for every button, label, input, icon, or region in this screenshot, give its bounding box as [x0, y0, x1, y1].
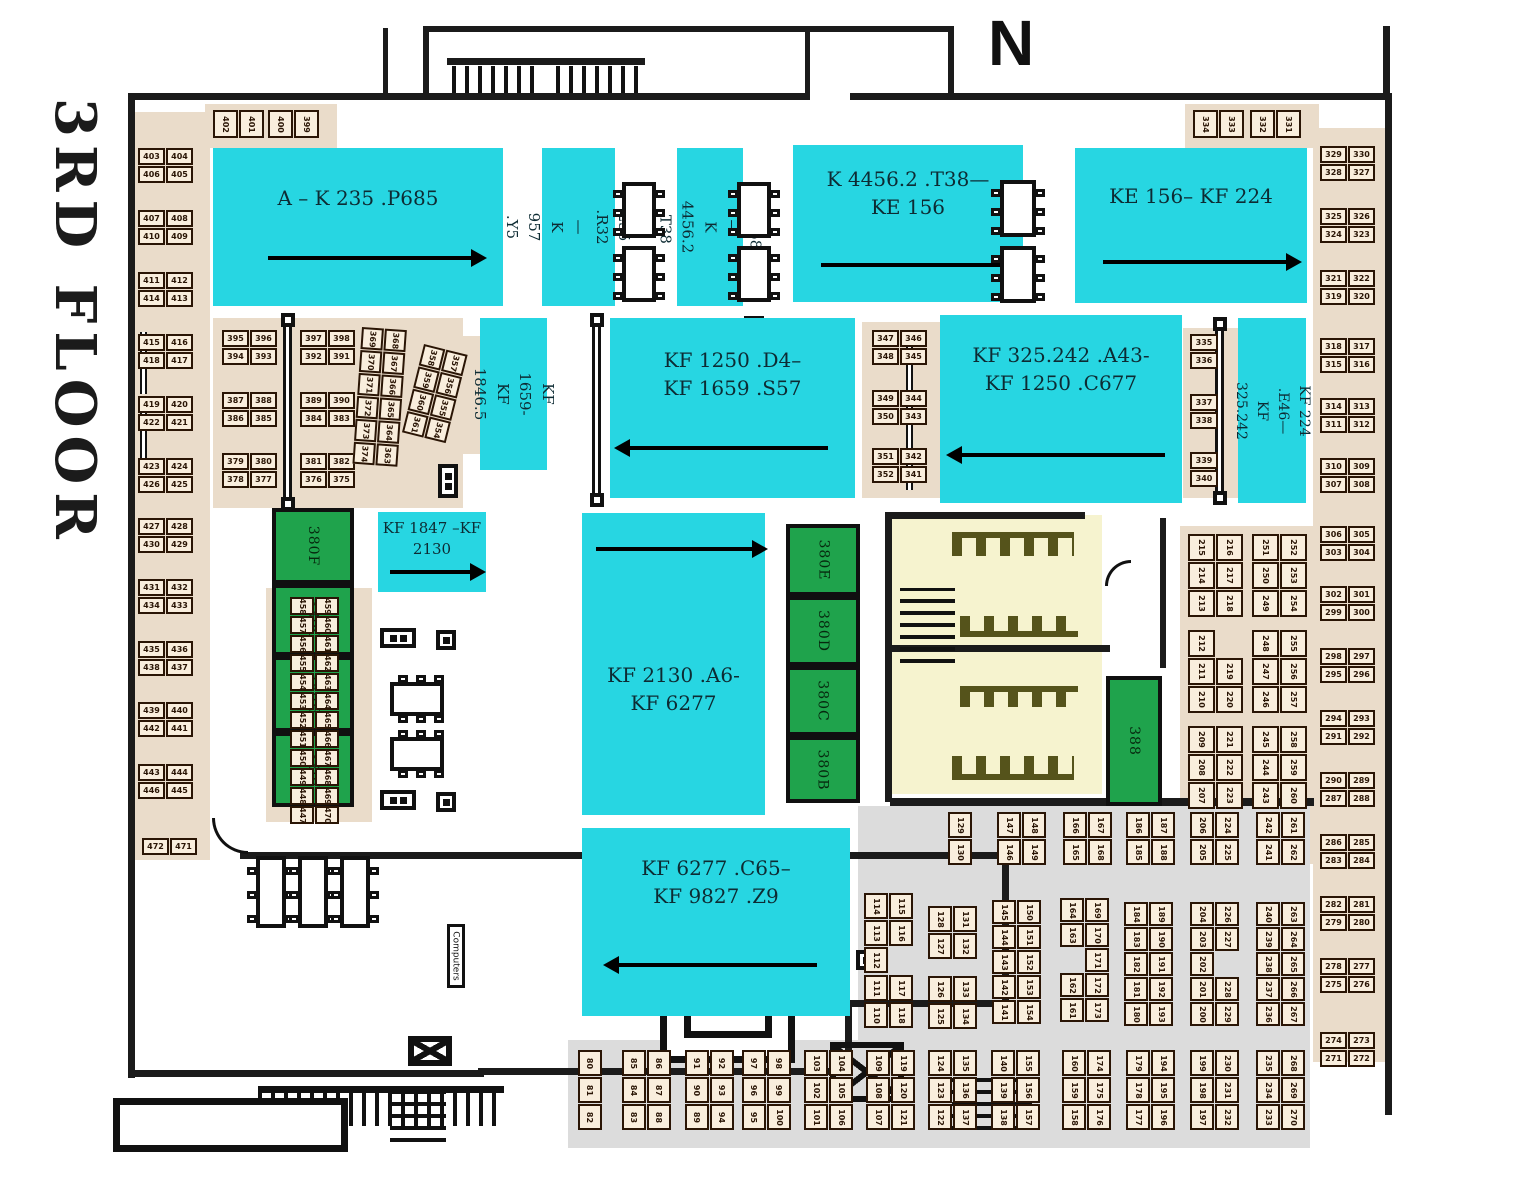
desk-cluster: 314313311312 — [1320, 398, 1375, 434]
desk-number: 93 — [717, 1084, 726, 1095]
desk-number: 206 — [1197, 817, 1206, 834]
desk-cluster: 369368370367371366372365373364374363 — [352, 327, 407, 468]
desk-372: 372 — [356, 396, 379, 419]
desk-455: 455 — [290, 654, 314, 672]
desk-106: 106 — [829, 1104, 853, 1130]
shelving-direction-arrow — [960, 453, 1165, 457]
desk-275: 275 — [1320, 976, 1347, 993]
desk-454: 454 — [290, 673, 314, 691]
desk-number: 351 — [877, 452, 894, 461]
desk-422: 422 — [138, 414, 165, 431]
shelving-direction-arrow — [268, 256, 473, 260]
chair — [613, 292, 623, 300]
desk-385: 385 — [250, 410, 277, 427]
wall-segment — [447, 58, 645, 65]
desk-row: 144151 — [992, 925, 1041, 949]
desk-number: 315 — [1325, 360, 1342, 369]
desk-number: 318 — [1325, 342, 1342, 351]
desk-223: 223 — [1216, 782, 1243, 809]
desk-170: 170 — [1085, 923, 1109, 947]
desk-151: 151 — [1017, 925, 1041, 949]
desk-cluster: 472471 — [142, 838, 197, 856]
desk-89: 89 — [685, 1104, 709, 1130]
desk-number: 148 — [1029, 817, 1038, 834]
desk-row: 340 — [1190, 470, 1218, 487]
desk-number: 203 — [1197, 931, 1206, 948]
stairs — [556, 66, 638, 93]
desk-row: 211219 — [1188, 658, 1243, 685]
desk-248: 248 — [1252, 630, 1279, 657]
desk-number: 446 — [143, 786, 160, 795]
desk-number: 168 — [1095, 844, 1104, 861]
desk-row: 248255 — [1252, 630, 1307, 657]
desk-number: 182 — [1131, 956, 1140, 973]
desk-row: 139156 — [991, 1077, 1040, 1103]
desk-168: 168 — [1088, 839, 1112, 865]
desk-cluster: 206224205225 — [1190, 812, 1239, 866]
desk-445: 445 — [166, 782, 193, 799]
desk-306: 306 — [1320, 526, 1347, 543]
desk-number: 309 — [1353, 462, 1370, 471]
desk-327: 327 — [1348, 164, 1375, 181]
desk-row: 299300 — [1320, 604, 1375, 621]
desk-number: 187 — [1158, 817, 1167, 834]
stack-zone-k958-k4456: K 958— K 4456.2 .T38 — [677, 148, 743, 306]
desk-number: 349 — [877, 394, 894, 403]
desk-83: 83 — [622, 1104, 646, 1130]
desk-row: 213218 — [1188, 590, 1243, 617]
desk-cluster: 407408410409 — [138, 210, 193, 246]
desk-280: 280 — [1348, 914, 1375, 931]
desk-328: 328 — [1320, 164, 1347, 181]
desk-308: 308 — [1348, 476, 1375, 493]
desk-number: 89 — [692, 1111, 701, 1122]
desk-cluster: 160174159175158176 — [1062, 1050, 1111, 1131]
desk-273: 273 — [1348, 1032, 1375, 1049]
desk-381: 381 — [300, 453, 327, 470]
desk-number: 107 — [873, 1109, 882, 1126]
floor-title: 3RD FLOOR — [42, 98, 108, 547]
desk-384: 384 — [300, 410, 327, 427]
desk-row: 384383 — [300, 410, 355, 427]
desk-row: 177196 — [1126, 1104, 1175, 1130]
desk-230: 230 — [1215, 1050, 1239, 1076]
desk-row: 457460 — [290, 616, 339, 634]
desk-number: 139 — [998, 1082, 1007, 1099]
shelving-direction-arrow — [596, 547, 754, 551]
desk-cluster: 351342352341 — [872, 448, 927, 484]
desk-row: 251252 — [1252, 534, 1307, 561]
desk-row: 295296 — [1320, 666, 1375, 683]
desk-148: 148 — [1022, 812, 1046, 838]
desk-number: 296 — [1353, 670, 1370, 679]
desk-number: 328 — [1325, 168, 1342, 177]
desk-row: 183190 — [1124, 927, 1173, 951]
desk-row: 336 — [1190, 352, 1218, 369]
desk-cluster: 337338 — [1190, 394, 1218, 430]
shelving-direction-arrow — [821, 263, 1021, 267]
desk-number: 453 — [297, 693, 306, 710]
desk-number: 190 — [1156, 931, 1165, 948]
desk-401: 401 — [239, 110, 264, 138]
desk-366: 366 — [380, 374, 403, 397]
desk-number: 265 — [1288, 956, 1297, 973]
desk-number: 205 — [1197, 844, 1206, 861]
stack-zone-label: KF 1250 .D4– KF 1659 .S57 — [610, 346, 855, 402]
chair — [728, 254, 738, 262]
desk-217: 217 — [1216, 562, 1243, 589]
desk-465: 465 — [315, 711, 339, 729]
desk-number: 289 — [1353, 776, 1370, 785]
desk-number: 227 — [1222, 931, 1231, 948]
desk-389: 389 — [300, 392, 327, 409]
desk-270: 270 — [1281, 1104, 1305, 1130]
desk-number: 445 — [171, 786, 188, 795]
desk-row: 302301 — [1320, 586, 1375, 603]
desk-299: 299 — [1320, 604, 1347, 621]
desk-388: 388 — [250, 392, 277, 409]
desk-number: 128 — [935, 911, 944, 928]
desk-number: 209 — [1197, 731, 1206, 748]
desk-number: 222 — [1225, 759, 1234, 776]
desk-125: 125 — [928, 1003, 952, 1029]
desk-464: 464 — [315, 692, 339, 710]
desk-298: 298 — [1320, 648, 1347, 665]
desk-number: 313 — [1353, 402, 1370, 411]
desk-146: 146 — [997, 839, 1021, 865]
desk-211: 211 — [1188, 658, 1215, 685]
desk-row: 236267 — [1256, 1002, 1305, 1026]
desk-232: 232 — [1215, 1104, 1239, 1130]
desk-row: 171 — [1060, 948, 1109, 972]
desk-253: 253 — [1280, 562, 1307, 589]
chair — [991, 189, 1001, 197]
desk-cluster: 318317315316 — [1320, 338, 1375, 374]
desk-number: 468 — [322, 769, 331, 786]
desk-271: 271 — [1320, 1050, 1347, 1067]
desk-241: 241 — [1256, 839, 1280, 865]
desk-cluster: 349344350343 — [872, 390, 927, 426]
desk-number: 184 — [1131, 906, 1140, 923]
desk-row: 453464 — [290, 692, 339, 710]
desk-number: 406 — [143, 170, 160, 179]
desk-number: 427 — [143, 522, 160, 531]
desk-91: 91 — [685, 1050, 709, 1076]
desk-number: 176 — [1094, 1109, 1103, 1126]
desk-row: 205225 — [1190, 839, 1239, 865]
desk-row: 381382 — [300, 453, 355, 470]
desk-147: 147 — [997, 812, 1021, 838]
desk-number: 204 — [1197, 906, 1206, 923]
desk-187: 187 — [1151, 812, 1175, 838]
desk-number: 217 — [1225, 567, 1234, 584]
desk-276: 276 — [1348, 976, 1375, 993]
desk-154: 154 — [1017, 1000, 1041, 1024]
desk-number: 358 — [426, 348, 439, 366]
desk-number: 211 — [1197, 663, 1206, 680]
desk-number: 269 — [1288, 1082, 1297, 1099]
desk-200: 200 — [1190, 1002, 1214, 1026]
desk-363: 363 — [375, 443, 398, 466]
desk-number: 250 — [1261, 567, 1270, 584]
desk-cluster: 423424426425 — [138, 458, 193, 494]
desk-199: 199 — [1190, 1050, 1214, 1076]
desk-number: 282 — [1325, 900, 1342, 909]
desk-318: 318 — [1320, 338, 1347, 355]
desk-number: 322 — [1353, 274, 1370, 283]
chair — [398, 715, 408, 723]
desk-number: 249 — [1261, 595, 1270, 612]
desk-number: 140 — [998, 1055, 1007, 1072]
desk-number: 114 — [871, 898, 880, 915]
desk-number: 138 — [998, 1109, 1007, 1126]
desk-cluster: 919290938994 — [685, 1050, 734, 1131]
desk-233: 233 — [1256, 1104, 1280, 1130]
desk-row: 287288 — [1320, 790, 1375, 807]
desk-row: 389390 — [300, 392, 355, 409]
desk-number: 399 — [302, 116, 311, 133]
desk-164: 164 — [1060, 898, 1084, 922]
desk-408: 408 — [166, 210, 193, 227]
desk-number: 133 — [960, 981, 969, 998]
desk-number: 186 — [1133, 817, 1142, 834]
desk-row: 392391 — [300, 348, 355, 365]
desk-433: 433 — [166, 597, 193, 614]
desk-number: 432 — [171, 583, 188, 592]
desk-number: 288 — [1353, 794, 1370, 803]
desk-number: 246 — [1261, 691, 1270, 708]
desk-414: 414 — [138, 290, 165, 307]
desk-number: 388 — [255, 396, 272, 405]
desk-number: 179 — [1133, 1055, 1142, 1072]
desk-number: 464 — [322, 693, 331, 710]
desk-number: 384 — [305, 414, 322, 423]
desk-row: 186187 — [1126, 812, 1175, 838]
desk-row: 371366 — [357, 373, 403, 398]
desk-281: 281 — [1348, 896, 1375, 913]
desk-number: 261 — [1288, 817, 1297, 834]
desk-194: 194 — [1151, 1050, 1175, 1076]
desk-number: 268 — [1288, 1055, 1297, 1072]
chair — [1035, 274, 1045, 282]
desk-137: 137 — [953, 1104, 977, 1130]
desk-row: 8994 — [685, 1104, 734, 1130]
desk-152: 152 — [1017, 950, 1041, 974]
desk-247: 247 — [1252, 658, 1279, 685]
desk-329: 329 — [1320, 146, 1347, 163]
desk-189: 189 — [1149, 902, 1173, 926]
desk-row: 9093 — [685, 1077, 734, 1103]
desk-cluster: 179194178195177196 — [1126, 1050, 1175, 1131]
desk-204: 204 — [1190, 902, 1214, 926]
desk-139: 139 — [991, 1077, 1015, 1103]
desk-row: 204226 — [1190, 902, 1239, 926]
group-table — [298, 856, 328, 928]
desk-number: 257 — [1289, 691, 1298, 708]
desk-row: 329330 — [1320, 146, 1375, 163]
desk-number: 283 — [1325, 856, 1342, 865]
desk-row: 450467 — [290, 749, 339, 767]
desk-215: 215 — [1188, 534, 1215, 561]
desk-number: 210 — [1197, 691, 1206, 708]
desk-row: 200229 — [1190, 1002, 1239, 1026]
desk-179: 179 — [1126, 1050, 1150, 1076]
group-table — [1000, 180, 1036, 237]
desk-81: 81 — [578, 1077, 602, 1103]
desk-number: 297 — [1353, 652, 1370, 661]
chair — [369, 867, 379, 875]
desk-number: 299 — [1325, 608, 1342, 617]
chair — [434, 715, 444, 723]
desk-row: 306305 — [1320, 526, 1375, 543]
chair — [331, 915, 341, 923]
desk-number: 208 — [1197, 759, 1206, 776]
desk-row: 110118 — [864, 1002, 913, 1028]
desk-423: 423 — [138, 458, 165, 475]
desk-number: 467 — [322, 750, 331, 767]
desk-row: 311312 — [1320, 416, 1375, 433]
desk-row: 238265 — [1256, 952, 1305, 976]
shelf-unit — [438, 464, 458, 498]
desk-number: 101 — [811, 1109, 820, 1126]
desk-221: 221 — [1216, 726, 1243, 753]
desk-number: 253 — [1289, 567, 1298, 584]
desk-number: 301 — [1353, 590, 1370, 599]
desk-row: 275276 — [1320, 976, 1375, 993]
desk-437: 437 — [166, 659, 193, 676]
desk-175: 175 — [1087, 1077, 1111, 1103]
chair — [331, 891, 341, 899]
desk-cluster: 400399 — [268, 110, 319, 139]
chair — [655, 190, 665, 198]
desk-330: 330 — [1348, 146, 1375, 163]
desk-number: 306 — [1325, 530, 1342, 539]
desk-197: 197 — [1190, 1104, 1214, 1130]
desk-222: 222 — [1216, 754, 1243, 781]
wall-segment — [128, 1070, 484, 1077]
desk-number: 166 — [1070, 817, 1079, 834]
desk-cluster: 808182 — [578, 1050, 602, 1131]
desk-195: 195 — [1151, 1077, 1175, 1103]
desk-row: 319320 — [1320, 288, 1375, 305]
desk-cluster: 242261241262 — [1256, 812, 1305, 866]
chair — [655, 228, 665, 236]
chair — [728, 190, 738, 198]
desk-number: 195 — [1158, 1082, 1167, 1099]
desk-row: 201228 — [1190, 977, 1239, 1001]
desk-284: 284 — [1348, 852, 1375, 869]
desk-352: 352 — [872, 466, 899, 483]
desk-185: 185 — [1126, 839, 1150, 865]
desk-number: 149 — [1029, 844, 1038, 861]
desk-row: 179194 — [1126, 1050, 1175, 1076]
desk-cluster: 204226203227202201228200229 — [1190, 902, 1239, 1027]
desk-row: 240263 — [1256, 902, 1305, 926]
desk-301: 301 — [1348, 586, 1375, 603]
desk-number: 448 — [297, 788, 306, 805]
desk-cluster: 245258244259243260 — [1252, 726, 1307, 810]
desk-number: 375 — [333, 475, 350, 484]
desk-row: 147148 — [997, 812, 1046, 838]
desk-row: 443444 — [138, 764, 193, 781]
desk-number: 239 — [1263, 931, 1272, 948]
desk-number: 119 — [898, 1055, 907, 1072]
desk-number: 247 — [1261, 663, 1270, 680]
desk-row: 80 — [578, 1050, 602, 1076]
wall-segment — [885, 512, 892, 802]
desk-number: 173 — [1092, 1002, 1101, 1019]
desk-number: 460 — [322, 617, 331, 634]
desk-130: 130 — [948, 839, 972, 865]
desk-row: 338 — [1190, 412, 1218, 429]
desk-number: 415 — [143, 338, 160, 347]
desk-cluster: 419420422421 — [138, 396, 193, 432]
desk-row: 202 — [1190, 952, 1239, 976]
desk-row: 455462 — [290, 654, 339, 672]
desk-number: 298 — [1325, 652, 1342, 661]
desk-row: 244259 — [1252, 754, 1307, 781]
desk-number: 105 — [836, 1082, 845, 1099]
desk-237: 237 — [1256, 977, 1280, 1001]
desk-row: 239264 — [1256, 927, 1305, 951]
bookshelf — [592, 322, 601, 498]
stack-zone-kf325-kf1250: KF 325.242 .A43- KF 1250 .C677 — [940, 315, 1182, 503]
desk-number: 106 — [836, 1109, 845, 1126]
desk-124: 124 — [928, 1050, 952, 1076]
desk-cluster: 402401 — [213, 110, 264, 139]
desk-260: 260 — [1280, 782, 1307, 809]
chair — [655, 209, 665, 217]
desk-number: 291 — [1325, 732, 1342, 741]
chair — [613, 190, 623, 198]
desk-226: 226 — [1215, 902, 1239, 926]
desk-number: 360 — [414, 393, 427, 411]
desk-number: 116 — [896, 925, 905, 942]
desk-row: 339 — [1190, 452, 1218, 469]
desk-311: 311 — [1320, 416, 1347, 433]
desk-cluster: 4584594574604564614554624544634534644524… — [290, 597, 339, 825]
chair — [247, 915, 257, 923]
desk-number: 120 — [898, 1082, 907, 1099]
desk-number: 178 — [1133, 1082, 1142, 1099]
desk-number: 95 — [749, 1111, 758, 1122]
desk-224: 224 — [1215, 812, 1239, 838]
desk-number: 264 — [1288, 931, 1297, 948]
stack-zone-label: KF 2130 .A6- KF 6277 — [582, 661, 765, 717]
desk-315: 315 — [1320, 356, 1347, 373]
desk-404: 404 — [166, 148, 193, 165]
desk-368: 368 — [383, 329, 406, 352]
desk-number: 333 — [1227, 116, 1236, 133]
desk-row: 419420 — [138, 396, 193, 413]
desk-number: 338 — [1196, 416, 1213, 425]
desk-336: 336 — [1190, 352, 1218, 369]
wall-segment — [890, 798, 1314, 806]
wall-segment — [850, 93, 1390, 100]
wall-segment — [128, 93, 810, 100]
desk-number: 174 — [1094, 1055, 1103, 1072]
desk-316: 316 — [1348, 356, 1375, 373]
floor-plan: 3RD FLOOR N Computers MENS WOMENS A – K … — [0, 0, 1536, 1187]
desk-87: 87 — [647, 1077, 671, 1103]
desk-number: 447 — [297, 807, 306, 824]
desk-row: 237266 — [1256, 977, 1305, 1001]
desk-461: 461 — [315, 635, 339, 653]
desk-467: 467 — [315, 749, 339, 767]
desk-number: 311 — [1325, 420, 1342, 429]
desk-row: 278277 — [1320, 958, 1375, 975]
stack-zone-kf1659-kf1846: KF 1659- KF 1846.5 — [480, 318, 547, 470]
